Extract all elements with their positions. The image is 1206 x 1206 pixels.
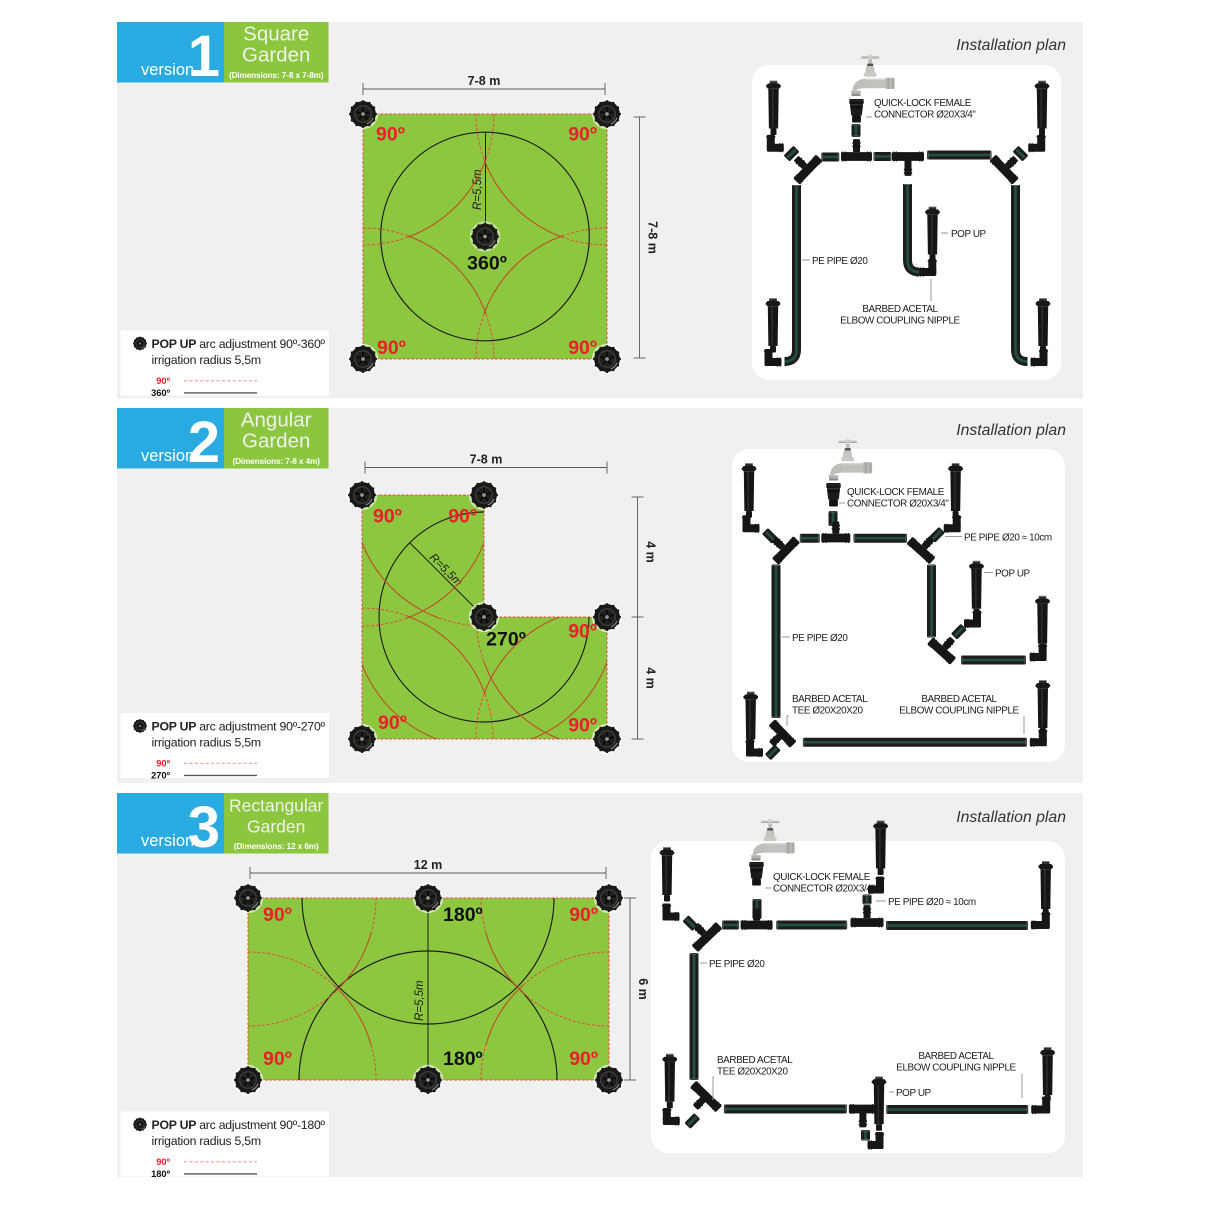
svg-text:PE PIPE Ø20: PE PIPE Ø20 <box>792 633 848 644</box>
svg-text:version: version <box>141 61 194 79</box>
svg-text:CONNECTOR Ø20X3/4": CONNECTOR Ø20X3/4" <box>874 110 976 121</box>
svg-text:90º: 90º <box>373 506 402 528</box>
svg-text:irrigation radius 5,5m: irrigation radius 5,5m <box>152 736 261 750</box>
svg-text:12 m: 12 m <box>414 858 443 872</box>
svg-text:Garden: Garden <box>242 44 310 67</box>
svg-text:90º: 90º <box>448 506 477 528</box>
svg-text:360º: 360º <box>151 388 171 398</box>
svg-text:90º: 90º <box>263 1048 292 1070</box>
svg-text:POP UP: POP UP <box>951 229 987 240</box>
svg-text:180º: 180º <box>151 1169 171 1179</box>
svg-text:90º: 90º <box>569 1048 598 1070</box>
svg-text:POP UP arc adjustment 90º-180º: POP UP arc adjustment 90º-180º <box>152 1118 326 1132</box>
svg-text:7-8 m: 7-8 m <box>646 221 660 254</box>
svg-text:CONNECTOR Ø20X3/4": CONNECTOR Ø20X3/4" <box>773 884 875 895</box>
svg-text:7-8 m: 7-8 m <box>468 74 501 88</box>
svg-text:90º: 90º <box>377 337 406 359</box>
svg-text:PE PIPE Ø20 ≈ 10cm: PE PIPE Ø20 ≈ 10cm <box>964 533 1052 544</box>
svg-text:180º: 180º <box>443 1048 483 1070</box>
svg-text:360º: 360º <box>467 253 507 275</box>
svg-text:BARBED ACETAL: BARBED ACETAL <box>717 1055 793 1066</box>
svg-text:BARBED ACETAL: BARBED ACETAL <box>792 694 868 705</box>
svg-text:QUICK-LOCK FEMALE: QUICK-LOCK FEMALE <box>874 98 972 109</box>
svg-text:2: 2 <box>188 410 220 475</box>
svg-text:270º: 270º <box>151 771 171 781</box>
svg-text:3: 3 <box>188 795 220 860</box>
svg-text:90º: 90º <box>156 376 170 386</box>
svg-text:irrigation radius 5,5m: irrigation radius 5,5m <box>152 353 261 367</box>
svg-text:TEE Ø20X20X20: TEE Ø20X20X20 <box>717 1067 788 1078</box>
svg-text:POP UP arc adjustment 90º-270º: POP UP arc adjustment 90º-270º <box>152 720 326 734</box>
svg-text:TEE Ø20X20X20: TEE Ø20X20X20 <box>792 706 863 717</box>
svg-text:Square: Square <box>243 23 309 46</box>
svg-text:CONNECTOR Ø20X3/4": CONNECTOR Ø20X3/4" <box>847 499 949 510</box>
svg-text:R=5,5m: R=5,5m <box>472 169 484 210</box>
svg-text:90º: 90º <box>568 337 597 359</box>
svg-text:BARBED ACETAL: BARBED ACETAL <box>918 1051 994 1062</box>
svg-text:PE PIPE Ø20: PE PIPE Ø20 <box>812 256 868 267</box>
svg-text:Garden: Garden <box>242 430 310 453</box>
svg-text:POP UP arc adjustment 90º-360º: POP UP arc adjustment 90º-360º <box>152 337 326 351</box>
svg-text:90º: 90º <box>568 715 597 737</box>
svg-text:(Dimensions: 12 x 6m): (Dimensions: 12 x 6m) <box>234 842 319 851</box>
svg-text:QUICK-LOCK FEMALE: QUICK-LOCK FEMALE <box>773 872 871 883</box>
svg-text:PE PIPE Ø20: PE PIPE Ø20 <box>709 959 765 970</box>
svg-text:POP UP: POP UP <box>896 1088 932 1099</box>
svg-text:BARBED ACETAL: BARBED ACETAL <box>862 304 938 315</box>
svg-text:Installation plan: Installation plan <box>956 37 1066 54</box>
svg-text:(Dimensions: 7-8 x 4m): (Dimensions: 7-8 x 4m) <box>232 457 320 466</box>
svg-text:R=5,5m: R=5,5m <box>414 980 426 1021</box>
svg-text:7-8 m: 7-8 m <box>470 453 503 467</box>
svg-text:90º: 90º <box>156 759 170 769</box>
svg-text:POP UP: POP UP <box>995 569 1031 580</box>
svg-text:90º: 90º <box>569 904 598 926</box>
svg-text:QUICK-LOCK FEMALE: QUICK-LOCK FEMALE <box>847 487 945 498</box>
svg-text:Garden: Garden <box>247 817 305 837</box>
svg-text:version: version <box>141 447 194 465</box>
svg-text:90º: 90º <box>378 712 407 734</box>
svg-text:270º: 270º <box>486 629 526 651</box>
svg-text:90º: 90º <box>156 1157 170 1167</box>
svg-text:BARBED ACETAL: BARBED ACETAL <box>921 694 997 705</box>
svg-text:90º: 90º <box>568 621 597 643</box>
svg-text:90º: 90º <box>376 124 405 146</box>
svg-text:irrigation radius 5,5m: irrigation radius 5,5m <box>152 1134 261 1148</box>
svg-text:Installation plan: Installation plan <box>956 422 1066 439</box>
svg-text:4 m: 4 m <box>644 667 658 689</box>
svg-text:90º: 90º <box>263 904 292 926</box>
svg-text:4 m: 4 m <box>644 541 658 563</box>
svg-text:Installation plan: Installation plan <box>956 809 1066 826</box>
svg-text:Rectangular: Rectangular <box>229 796 324 816</box>
svg-text:ELBOW COUPLING NIPPLE: ELBOW COUPLING NIPPLE <box>899 706 1019 717</box>
svg-text:1: 1 <box>188 24 220 89</box>
svg-text:Angular: Angular <box>241 409 312 432</box>
svg-text:PE PIPE Ø20 ≈ 10cm: PE PIPE Ø20 ≈ 10cm <box>888 897 976 908</box>
svg-text:6 m: 6 m <box>636 978 650 1000</box>
svg-text:ELBOW COUPLING NIPPLE: ELBOW COUPLING NIPPLE <box>840 316 960 327</box>
svg-text:180º: 180º <box>443 904 483 926</box>
svg-text:version: version <box>141 832 194 850</box>
svg-text:(Dimensions: 7-8 x 7-8m): (Dimensions: 7-8 x 7-8m) <box>229 71 324 80</box>
svg-text:90º: 90º <box>568 124 597 146</box>
svg-text:ELBOW COUPLING NIPPLE: ELBOW COUPLING NIPPLE <box>896 1063 1016 1074</box>
